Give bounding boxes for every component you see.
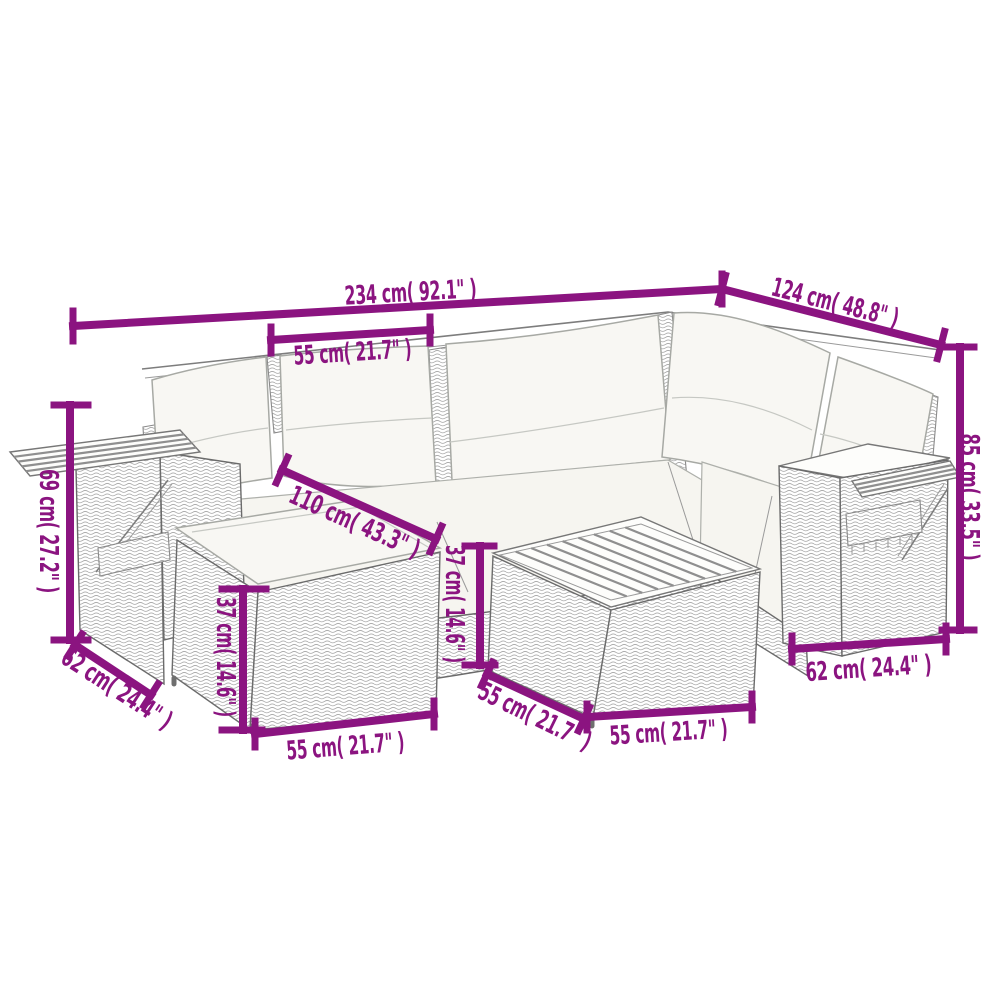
corner-sofa [10,312,960,700]
right-armrest [779,444,960,656]
dim-right-arm-depth-label: 62 cm( 24.4" ) [805,650,933,688]
right-arm-left-face [779,466,842,656]
dim-ottoman-width-label: 55 cm( 21.7" ) [285,727,405,766]
back-cushion-3 [446,315,670,481]
dim-ottoman-height-label: 37 cm( 14.6" ) [210,597,240,717]
dim-table-width-label: 55 cm( 21.7" ) [609,714,729,751]
diagram-canvas: 234 cm( 92.1" ) 55 cm( 21.7" ) 124 cm( 4… [0,0,1000,1000]
dim-table-height-label: 37 cm( 14.6" ) [439,545,469,663]
dim-wing-length-label: 124 cm( 48.8" ) [768,273,901,334]
dim-seat-width: 55 cm( 21.7" ) [271,317,430,372]
dim-overall-height-label: 85 cm( 33.5" ) [954,434,984,561]
dim-arm-height-label: 69 cm( 27.2" ) [33,469,63,593]
product-dimension-diagram: 234 cm( 92.1" ) 55 cm( 21.7" ) 124 cm( 4… [0,0,1000,1000]
